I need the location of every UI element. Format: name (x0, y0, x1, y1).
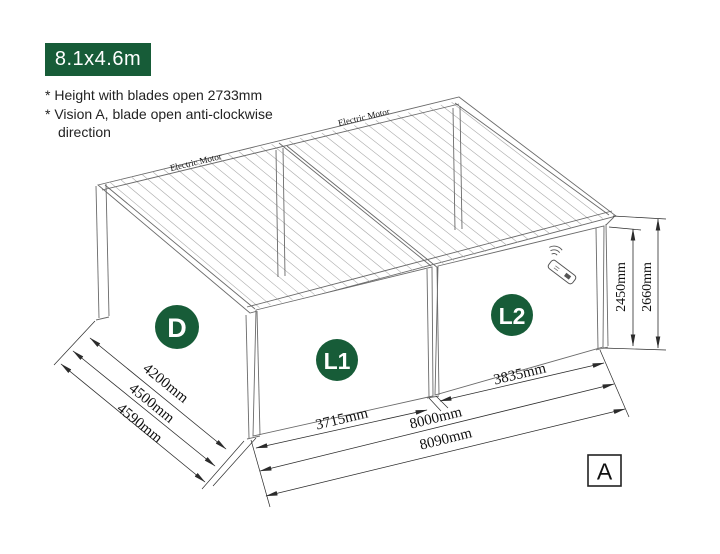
ext-bottom-left (251, 440, 270, 507)
badge-bay1-label: L1 (324, 348, 351, 374)
dimension-right: 2450mm 2660mm (603, 216, 666, 350)
dim-label-8090: 8090mm (418, 425, 474, 454)
pergola-diagram: Electric Motor Electric Motor (0, 0, 720, 554)
badge-depth-label: D (167, 313, 187, 343)
ext-bottom-mid-b (436, 396, 448, 408)
ext-left-bottom-b (213, 438, 256, 486)
post-back-left-foot (96, 317, 109, 320)
dimension-left: 4200mm 4500mm 4590mm (54, 321, 256, 489)
ext-bottom-right (600, 350, 629, 417)
view-box: A (588, 455, 621, 486)
ext-right-top-outer (613, 216, 666, 219)
post-right-b (606, 224, 608, 346)
ext-left-bottom-a (202, 441, 244, 489)
view-box-label: A (597, 459, 613, 485)
post-front-left-a (246, 315, 249, 438)
post-back-left-b (106, 184, 109, 316)
dim-label-2450: 2450mm (614, 262, 629, 312)
dim-label-2660: 2660mm (640, 262, 655, 312)
ext-right-bottom (603, 348, 666, 350)
ext-left-top (54, 321, 95, 365)
ext-right-top-inner (609, 227, 641, 230)
pergola-spec-sheet: 8.1x4.6m * Height with blades open 2733m… (0, 0, 720, 554)
badge-bay2-label: L2 (499, 303, 526, 329)
post-back-left-a (96, 186, 99, 318)
